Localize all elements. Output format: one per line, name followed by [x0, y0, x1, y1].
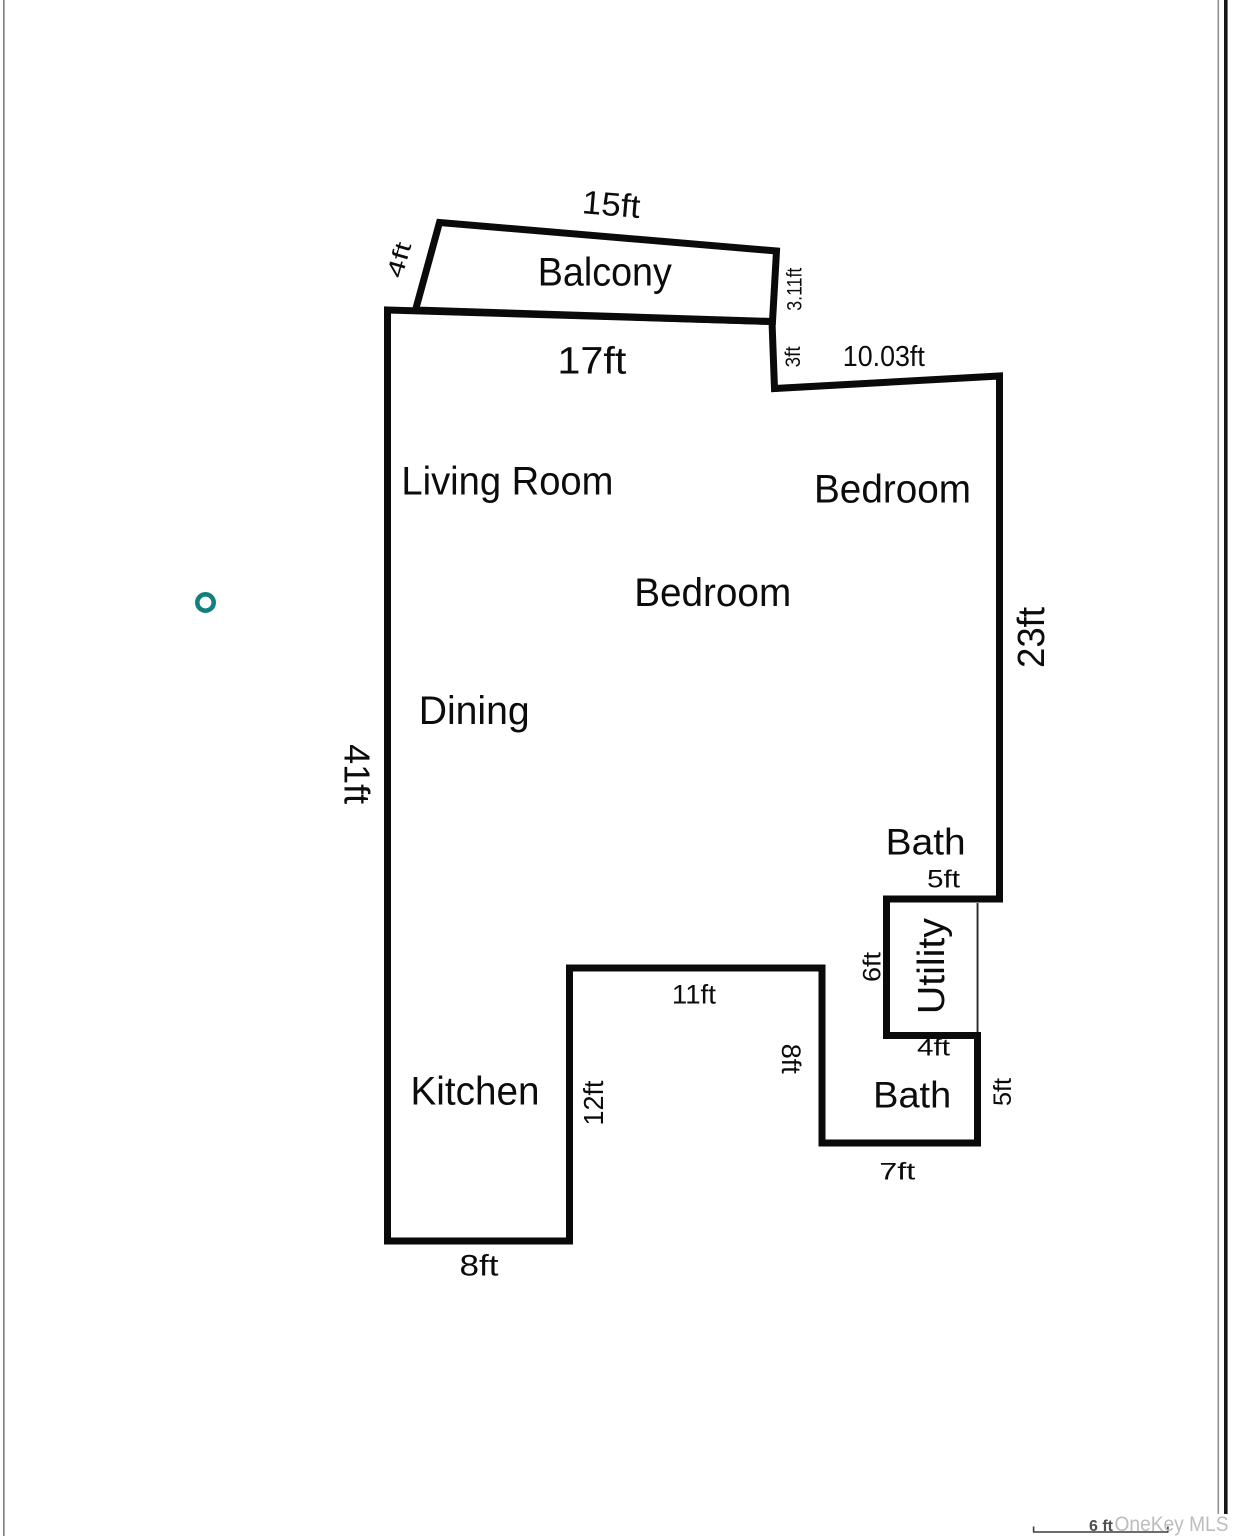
svg-text:Utility: Utility [911, 918, 953, 1014]
svg-text:41ft: 41ft [337, 744, 378, 804]
svg-text:5ft: 5ft [989, 1078, 1017, 1106]
svg-text:6 ft: 6 ft [1089, 1518, 1114, 1535]
svg-text:17ft: 17ft [557, 341, 626, 383]
svg-text:4ft: 4ft [917, 1035, 950, 1062]
svg-text:23ft: 23ft [1011, 607, 1053, 668]
svg-text:Kitchen: Kitchen [411, 1069, 540, 1113]
svg-text:3ft: 3ft [782, 346, 805, 367]
svg-text:15ft: 15ft [581, 183, 642, 225]
svg-text:8ft: 8ft [776, 1044, 806, 1074]
svg-text:Bedroom: Bedroom [634, 571, 791, 615]
svg-text:Bath: Bath [873, 1075, 951, 1116]
svg-text:3.11ft: 3.11ft [784, 268, 807, 311]
svg-text:8ft: 8ft [460, 1250, 500, 1283]
svg-text:OneKey MLS: OneKey MLS [1115, 1513, 1229, 1536]
svg-text:12ft: 12ft [578, 1080, 609, 1125]
svg-text:6ft: 6ft [859, 952, 887, 982]
svg-text:Balcony: Balcony [538, 250, 672, 294]
svg-text:7ft: 7ft [879, 1159, 915, 1186]
svg-text:Bedroom: Bedroom [814, 468, 971, 512]
svg-text:5ft: 5ft [927, 866, 960, 894]
svg-text:Living Room: Living Room [401, 460, 613, 504]
svg-text:11ft: 11ft [672, 979, 717, 1009]
svg-text:10.03ft: 10.03ft [843, 341, 925, 373]
svg-text:Bath: Bath [886, 822, 966, 863]
svg-text:Dining: Dining [419, 689, 530, 733]
